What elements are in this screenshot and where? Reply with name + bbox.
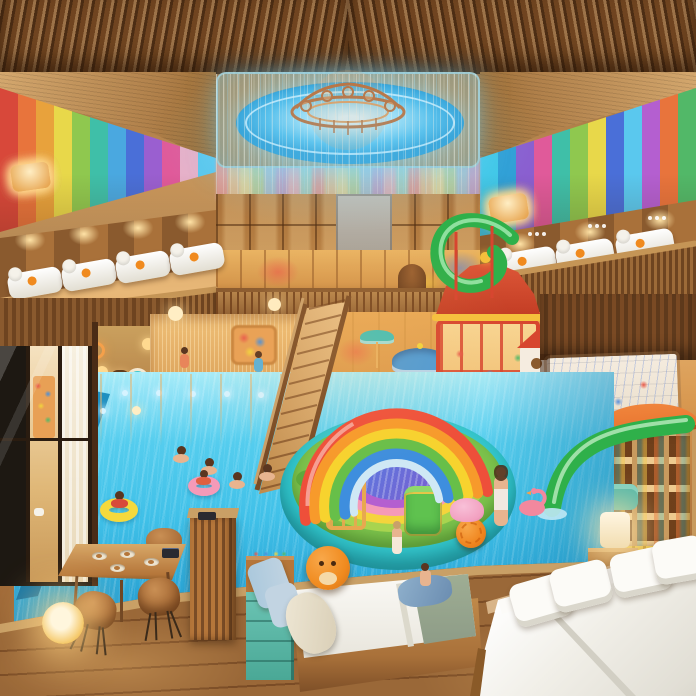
child-on-bed [420, 570, 431, 586]
window-header-slats [0, 322, 98, 346]
slatted-cabinet [190, 516, 236, 640]
pool-light [100, 408, 106, 414]
pool-light [156, 390, 162, 396]
pink-plush [450, 498, 484, 522]
orange-ball-plush [456, 518, 486, 548]
pink-swim-ring-with-child [188, 476, 220, 496]
round-lantern [168, 306, 183, 321]
child-figure [180, 354, 189, 368]
swimming-child [172, 446, 190, 466]
standing-child-figure [392, 528, 402, 554]
wood-slat-ceiling-right [348, 0, 696, 74]
playhouse-post [664, 428, 669, 552]
round-lantern [268, 298, 281, 311]
child-figure [296, 350, 305, 364]
window-mullion [58, 346, 62, 582]
blue-room-bed [32, 506, 57, 550]
yellow-swim-ring-with-child [100, 498, 138, 522]
wood-slat-ceiling-left [0, 0, 348, 74]
pool-light [224, 391, 230, 397]
back-wall-panel [336, 194, 392, 254]
wall-dots-decor [588, 224, 592, 228]
teal-parasol [360, 330, 394, 344]
ceiling-recess [216, 72, 480, 168]
swimming-child [228, 472, 246, 492]
play-tower-finial [480, 252, 491, 263]
swimming-child [258, 464, 276, 484]
child-figure [254, 358, 263, 372]
standing-woman-figure [494, 476, 508, 526]
wall-dots-decor [648, 216, 652, 220]
glowing-floor-lamp [42, 602, 84, 644]
window-rail [0, 438, 98, 441]
green-play-barrel [404, 486, 442, 536]
food-plate [144, 558, 159, 566]
bedside-lamp [600, 512, 630, 548]
pool-light [190, 391, 196, 397]
picture-wall [33, 376, 55, 438]
blue-led-dome [236, 82, 464, 164]
pool-light [258, 392, 264, 398]
play-tower-roof [432, 258, 544, 322]
bush [296, 470, 322, 488]
wall-dots-decor [528, 232, 532, 236]
illustration-indoor-waterpark-hotel: Colorful indoor family resort atrium wit… [0, 0, 696, 696]
device-on-cabinet [198, 512, 216, 520]
colorful-poster [234, 328, 274, 362]
wood-slat-wall [540, 294, 696, 360]
window-mullion [26, 346, 30, 582]
gold-shower-frame [326, 444, 366, 530]
pool-light [122, 390, 128, 396]
lamp-glow [132, 406, 141, 415]
playhouse-post [692, 426, 696, 552]
food-plate [110, 564, 125, 572]
window-panel-teal-curtain [2, 346, 26, 582]
window-panel-room [30, 346, 58, 582]
white-pillow [651, 534, 696, 586]
table-leg [120, 580, 123, 622]
glowing-shelf-nook [10, 161, 51, 192]
food-plate [120, 550, 135, 558]
bush [310, 492, 328, 506]
pool-light [292, 392, 298, 398]
play-tower-trim [432, 314, 544, 321]
tablet-device [162, 548, 179, 558]
orange-plush-on-bed [306, 546, 350, 590]
food-plate [92, 552, 107, 560]
